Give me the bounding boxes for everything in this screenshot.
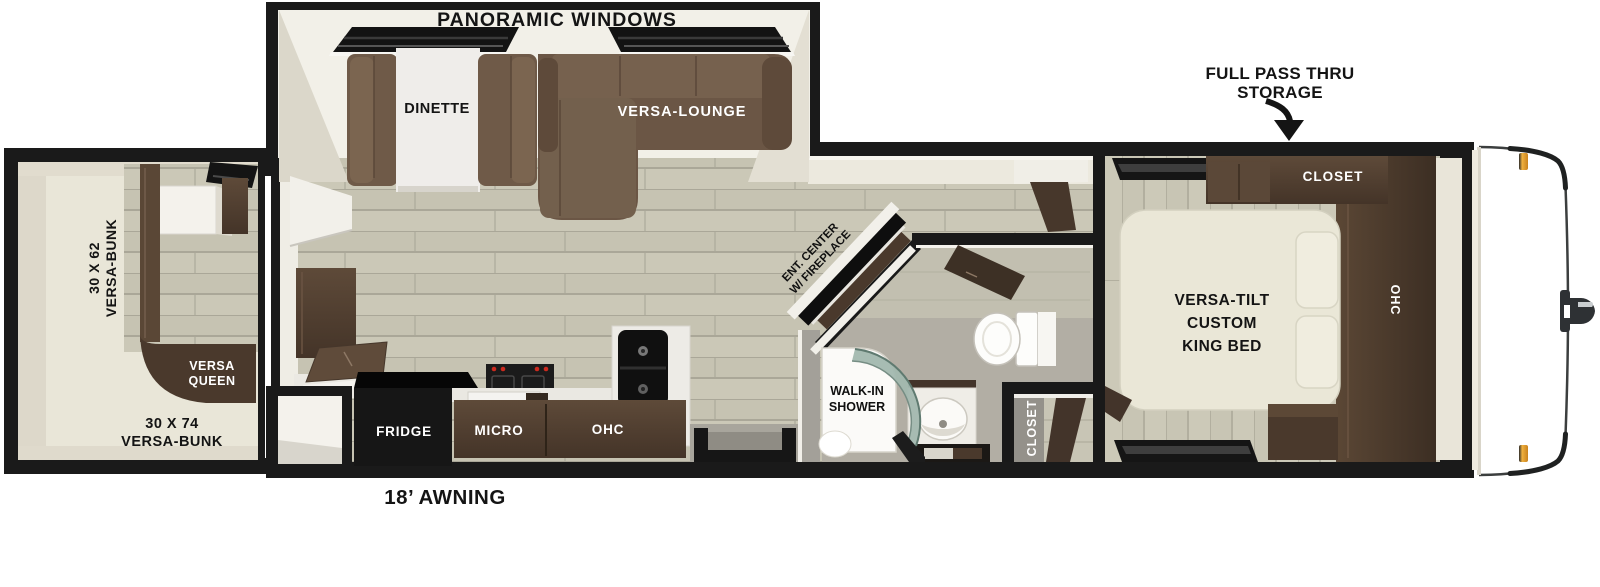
svg-text:OHC: OHC [1388,285,1402,316]
svg-text:KING BED: KING BED [1182,338,1262,355]
svg-text:CLOSET: CLOSET [1303,169,1364,184]
svg-text:VERSA-LOUNGE: VERSA-LOUNGE [618,104,747,120]
svg-text:OHC: OHC [592,422,624,437]
svg-text:FRIDGE: FRIDGE [376,424,432,439]
svg-text:30 X 62: 30 X 62 [86,242,102,294]
svg-text:18’ AWNING: 18’ AWNING [384,486,506,509]
svg-text:MICRO: MICRO [475,423,524,438]
svg-text:PANORAMIC WINDOWS: PANORAMIC WINDOWS [437,9,677,31]
svg-text:VERSA: VERSA [189,359,235,373]
svg-text:STORAGE: STORAGE [1237,83,1323,102]
svg-text:FULL PASS THRU: FULL PASS THRU [1205,64,1354,83]
svg-text:CLOSET: CLOSET [1025,400,1039,457]
svg-text:QUEEN: QUEEN [189,374,236,388]
svg-text:WALK-IN: WALK-IN [830,384,883,398]
svg-text:30 X 74: 30 X 74 [145,416,199,432]
svg-text:VERSA-BUNK: VERSA-BUNK [103,219,119,317]
svg-text:SHOWER: SHOWER [829,400,885,414]
svg-text:CUSTOM: CUSTOM [1187,315,1257,332]
svg-text:VERSA-TILT: VERSA-TILT [1174,292,1269,309]
svg-text:VERSA-BUNK: VERSA-BUNK [121,434,223,450]
svg-text:DINETTE: DINETTE [404,101,470,117]
